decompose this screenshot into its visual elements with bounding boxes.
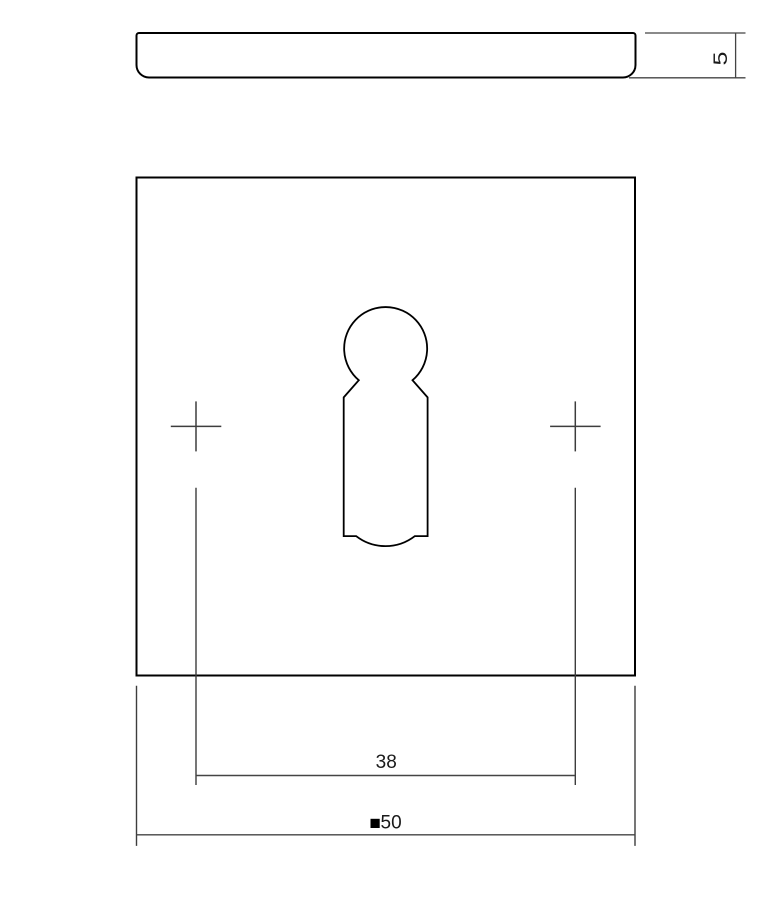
svg-text:38: 38 bbox=[376, 752, 397, 773]
svg-text:5: 5 bbox=[710, 52, 731, 66]
svg-text:50: 50 bbox=[381, 813, 402, 834]
